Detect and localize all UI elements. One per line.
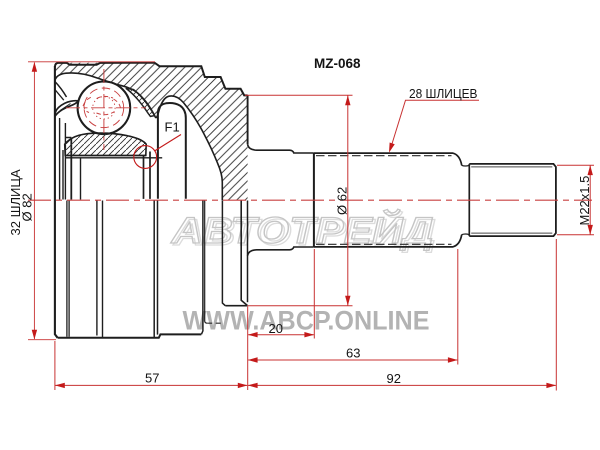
svg-text:F1: F1	[165, 120, 180, 135]
svg-text:MZ-068: MZ-068	[314, 56, 361, 71]
svg-text:57: 57	[145, 371, 159, 386]
svg-text:28 ШЛИЦЕВ: 28 ШЛИЦЕВ	[409, 86, 478, 101]
svg-text:Ø 62: Ø 62	[334, 187, 349, 215]
svg-text:WWW.ABCP.ONLINE: WWW.ABCP.ONLINE	[183, 306, 430, 336]
svg-text:20: 20	[269, 321, 283, 336]
svg-text:M22x1.5: M22x1.5	[577, 176, 592, 226]
svg-text:Ø 82: Ø 82	[19, 193, 34, 221]
svg-text:92: 92	[387, 371, 401, 386]
svg-text:63: 63	[346, 346, 360, 361]
